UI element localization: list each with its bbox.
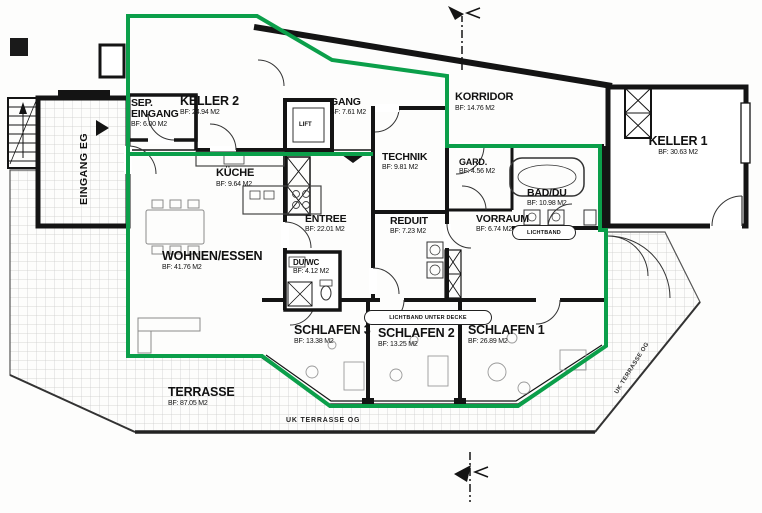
lift-label: LIFT [299, 122, 312, 128]
section-marker-bottom [454, 452, 488, 502]
living-furniture [138, 200, 204, 353]
outbuildings [10, 38, 124, 77]
lichtband-label: LICHTBAND [512, 225, 576, 240]
duwc-walls [285, 252, 340, 310]
plan-linework [0, 0, 762, 513]
uk-terrasse-og-bottom-label: UK TERRASSE OG [286, 417, 360, 424]
kitchen-fittings [196, 152, 321, 214]
floor-plan: SEP. EINGANG BF: 6.00 M2 KELLER 2 BF: 24… [0, 0, 762, 513]
bath-fittings [510, 158, 596, 225]
lichtband-unter-decke-label: LICHTBAND UNTER DECKE [364, 310, 492, 325]
reduit-appliances [427, 242, 443, 278]
door-arcs [128, 60, 670, 325]
bedroom-furniture [306, 333, 586, 394]
north-slant-wall [254, 27, 612, 86]
staircase [8, 98, 38, 168]
technik-walls [373, 104, 447, 212]
eingang-eg-label: EINGANG EG [78, 133, 90, 205]
